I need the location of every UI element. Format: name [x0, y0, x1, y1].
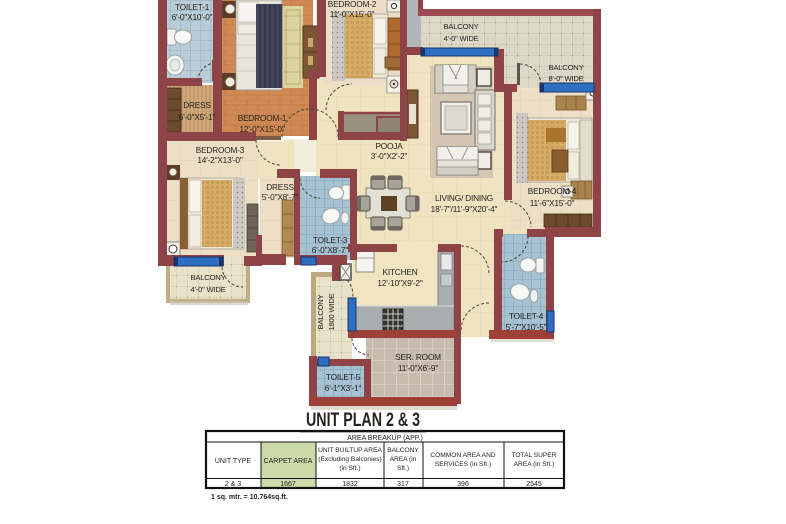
- svg-text:4'-0" WIDE: 4'-0" WIDE: [443, 34, 478, 43]
- svg-text:TOILET-1: TOILET-1: [175, 2, 210, 12]
- svg-text:11'-0"X15'-0": 11'-0"X15'-0": [330, 9, 375, 19]
- svg-text:4'-0" WIDE: 4'-0" WIDE: [190, 285, 225, 294]
- svg-text:KITCHEN: KITCHEN: [382, 267, 417, 277]
- svg-text:POOJA: POOJA: [375, 141, 403, 151]
- svg-text:BEDROOM-2: BEDROOM-2: [328, 0, 377, 9]
- svg-text:TOTAL SUPER: TOTAL SUPER: [512, 452, 557, 459]
- svg-text:BALCONY: BALCONY: [387, 447, 419, 454]
- svg-text:Sft.): Sft.): [397, 465, 409, 472]
- svg-text:2 & 3: 2 & 3: [225, 481, 241, 488]
- svg-text:AREA (in: AREA (in: [390, 456, 417, 463]
- svg-text:UNIT PLAN 2 & 3: UNIT PLAN 2 & 3: [306, 409, 420, 431]
- svg-text:6'-1"X3'-1": 6'-1"X3'-1": [325, 383, 362, 393]
- svg-text:BEDROOM-4: BEDROOM-4: [528, 186, 577, 196]
- svg-text:AREA BREAKUP (APP.): AREA BREAKUP (APP.): [347, 435, 423, 442]
- svg-text:1667: 1667: [280, 481, 296, 488]
- svg-text:396: 396: [457, 481, 469, 488]
- svg-text:18'-7"/11'-9"X20'-4": 18'-7"/11'-9"X20'-4": [431, 204, 498, 214]
- svg-text:BALCONY: BALCONY: [549, 63, 584, 72]
- svg-text:BALCONY: BALCONY: [316, 294, 325, 329]
- svg-text:12'-10"X9'-2": 12'-10"X9'-2": [377, 278, 422, 288]
- svg-text:3'-0"X2'-2": 3'-0"X2'-2": [371, 151, 408, 161]
- svg-text:317: 317: [397, 481, 409, 488]
- svg-text:UNIT TYPE: UNIT TYPE: [215, 458, 252, 465]
- svg-text:CARPET AREA: CARPET AREA: [264, 458, 313, 465]
- svg-text:1832: 1832: [342, 481, 358, 488]
- svg-text:6'-0"X10'-0": 6'-0"X10'-0": [172, 12, 213, 22]
- svg-text:1 sq. mtr. = 10.764sq.ft.: 1 sq. mtr. = 10.764sq.ft.: [211, 494, 288, 501]
- svg-text:TOILET-3: TOILET-3: [313, 235, 348, 245]
- svg-text:2545: 2545: [526, 481, 542, 488]
- svg-text:14'-2"X13'-0": 14'-2"X13'-0": [197, 155, 242, 165]
- svg-text:11'-0"X6'-9": 11'-0"X6'-9": [398, 363, 438, 373]
- svg-text:COMMON AREA AND: COMMON AREA AND: [430, 452, 495, 459]
- svg-text:8'-0" WIDE: 8'-0" WIDE: [548, 74, 583, 83]
- svg-text:LIVING/ DINING: LIVING/ DINING: [435, 193, 493, 203]
- svg-text:BALCONY: BALCONY: [191, 273, 226, 282]
- svg-text:BEDROOM-3: BEDROOM-3: [196, 145, 245, 155]
- svg-text:SERVICES (in Sft.): SERVICES (in Sft.): [435, 461, 491, 468]
- svg-text:BEDROOM-1: BEDROOM-1: [238, 113, 287, 123]
- svg-text:5'-0"X8'-7": 5'-0"X8'-7": [262, 192, 299, 202]
- svg-text:UNIT BUILTUP AREA: UNIT BUILTUP AREA: [318, 447, 382, 454]
- svg-text:SER. ROOM: SER. ROOM: [395, 352, 441, 362]
- svg-text:11'-6"X15'-0": 11'-6"X15'-0": [530, 198, 575, 208]
- svg-text:6'-0"X5'-1": 6'-0"X5'-1": [179, 112, 216, 122]
- svg-text:TOILET-4: TOILET-4: [509, 311, 544, 321]
- svg-text:TOILET-5: TOILET-5: [326, 372, 361, 382]
- svg-text:12'-0"X15'-0": 12'-0"X15'-0": [239, 124, 284, 134]
- svg-text:6'-0"X8'-7": 6'-0"X8'-7": [312, 245, 349, 255]
- svg-text:DRESS: DRESS: [266, 182, 294, 192]
- svg-text:5'-7"X10'-5": 5'-7"X10'-5": [506, 322, 547, 332]
- svg-text:AREA (in Sft.): AREA (in Sft.): [514, 461, 555, 468]
- svg-text:DRESS: DRESS: [183, 100, 211, 110]
- svg-text:(in Sft.): (in Sft.): [339, 465, 360, 472]
- svg-text:1800 WIDE: 1800 WIDE: [327, 293, 336, 330]
- svg-text:BALCONY: BALCONY: [444, 22, 479, 31]
- svg-text:(Excluding Balconies): (Excluding Balconies): [318, 456, 381, 463]
